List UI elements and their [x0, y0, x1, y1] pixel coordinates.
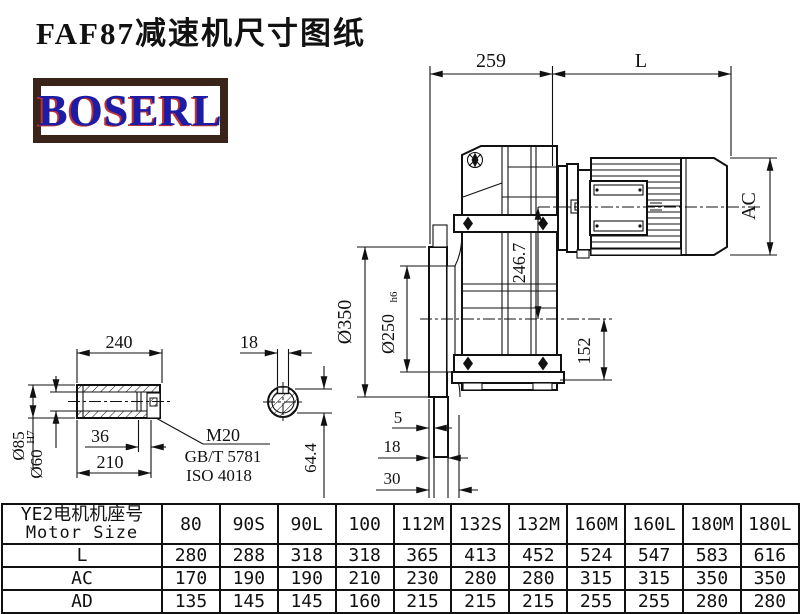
row-label-AD: AD	[2, 590, 162, 613]
dimension-value: 160	[336, 590, 394, 613]
dimension-value: 365	[394, 544, 452, 567]
dimension-value: 170	[162, 567, 220, 590]
dimension-value: 280	[741, 590, 799, 613]
motor-size-header-cn: YE2电机机座号	[3, 506, 161, 525]
dim-housing-length: 259	[476, 50, 506, 72]
dimension-value: 318	[278, 544, 336, 567]
dimension-value: 215	[509, 590, 567, 613]
motor-dimension-table: YE2电机机座号 Motor Size 8090S90L100112M132S1…	[1, 503, 800, 614]
dimension-value: 350	[741, 567, 799, 590]
standard-iso: ISO 4018	[186, 466, 252, 485]
row-label-L: L	[2, 544, 162, 567]
dimension-value: 413	[451, 544, 509, 567]
dim-thread: M20	[206, 425, 240, 445]
dimension-value: 452	[509, 544, 567, 567]
dim-shaft-length: 240	[106, 332, 133, 352]
dimension-value: 190	[220, 567, 278, 590]
column-header-100: 100	[336, 504, 394, 544]
dimension-value: 215	[394, 590, 452, 613]
dim-center-height: 246.7	[509, 243, 529, 284]
dimension-value: 215	[451, 590, 509, 613]
dim-bore: Ø60	[27, 449, 46, 478]
dim-keyway-width: 18	[240, 332, 258, 352]
dimension-row-AC: AC170190190210230280280315315350350	[2, 567, 799, 590]
dimension-value: 135	[162, 590, 220, 613]
dim-flange-spigot-tolerance: h6	[388, 291, 400, 303]
table-header-row: YE2电机机座号 Motor Size 8090S90L100112M132S1…	[2, 504, 799, 544]
dimension-value: 318	[336, 544, 394, 567]
motor-size-header-cell: YE2电机机座号 Motor Size	[2, 504, 162, 544]
dimension-value: 280	[451, 567, 509, 590]
dim-thread-depth: 36	[91, 426, 109, 446]
column-header-180L: 180L	[741, 504, 799, 544]
dim-flange-spigot: Ø250	[378, 314, 398, 354]
column-header-132S: 132S	[451, 504, 509, 544]
dim-bore-tolerance: H7	[25, 430, 37, 444]
column-header-160M: 160M	[567, 504, 625, 544]
dim-motor-od: AC	[738, 192, 760, 220]
dimension-value: 255	[567, 590, 625, 613]
dim-flange-step2: 18	[384, 437, 401, 456]
dimension-value: 210	[336, 567, 394, 590]
table-body: L280288318318365413452524547583616AC1701…	[2, 544, 799, 613]
dim-base-height: 152	[574, 338, 594, 365]
dimension-row-L: L280288318318365413452524547583616	[2, 544, 799, 567]
gearbox-motor-side-view: 259 L AC 246.7 152 Ø350 Ø250 h6	[334, 50, 777, 498]
dimension-value: 255	[625, 590, 683, 613]
dimension-value: 524	[567, 544, 625, 567]
column-header-112M: 112M	[394, 504, 452, 544]
dimension-value: 616	[741, 544, 799, 567]
dim-flange-od: Ø350	[334, 300, 356, 344]
dimension-value: 190	[278, 567, 336, 590]
dimension-row-AD: AD135145145160215215215255255280280	[2, 590, 799, 613]
dim-motor-length: L	[635, 50, 647, 72]
hollow-shaft-detail-view: 240 Ø85 Ø60 H7 36 210	[9, 332, 332, 498]
dim-flange-step1: 5	[394, 408, 403, 427]
page: FAF87减速机尺寸图纸 BOSERL	[0, 0, 800, 614]
column-header-80: 80	[162, 504, 220, 544]
dim-keyway-depth: 64.4	[301, 443, 320, 473]
dimension-value: 315	[567, 567, 625, 590]
dimension-value: 145	[220, 590, 278, 613]
column-header-90S: 90S	[220, 504, 278, 544]
dimension-value: 280	[683, 590, 741, 613]
standard-gb: GB/T 5781	[185, 447, 262, 466]
dimension-value: 350	[683, 567, 741, 590]
dimension-value: 280	[509, 567, 567, 590]
column-header-90L: 90L	[278, 504, 336, 544]
column-header-132M: 132M	[509, 504, 567, 544]
dimension-value: 280	[162, 544, 220, 567]
motor-size-header-en: Motor Size	[3, 525, 161, 543]
dimension-value: 230	[394, 567, 452, 590]
dimension-value: 315	[625, 567, 683, 590]
dim-flange-step3: 30	[384, 469, 401, 488]
dimension-value: 288	[220, 544, 278, 567]
row-label-AC: AC	[2, 567, 162, 590]
dimension-value: 547	[625, 544, 683, 567]
column-header-180M: 180M	[683, 504, 741, 544]
dimension-value: 145	[278, 590, 336, 613]
dim-hub-length: 210	[97, 452, 124, 472]
technical-drawing: 240 Ø85 Ø60 H7 36 210	[0, 0, 800, 503]
column-header-160L: 160L	[625, 504, 683, 544]
dimension-value: 583	[683, 544, 741, 567]
oil-plug-icon	[468, 153, 483, 168]
